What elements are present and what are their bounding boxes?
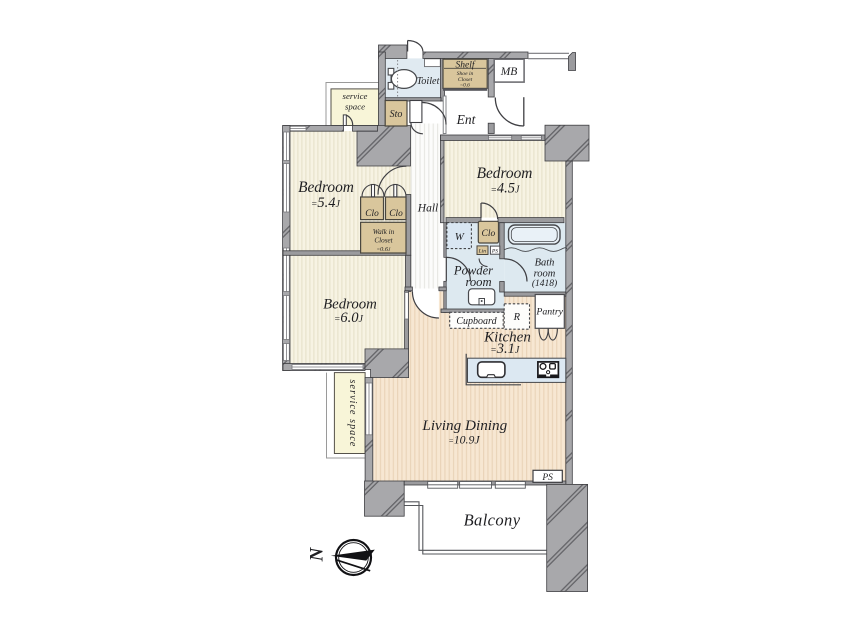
svg-text:(1418): (1418) bbox=[532, 278, 557, 289]
svg-text:service: service bbox=[343, 91, 368, 101]
svg-text:room: room bbox=[534, 268, 556, 279]
svg-text:PS: PS bbox=[541, 473, 553, 483]
svg-text:Bedroom: Bedroom bbox=[298, 179, 354, 196]
svg-text:Closet: Closet bbox=[374, 237, 393, 245]
svg-text:~0.6: ~0.6 bbox=[460, 82, 470, 88]
svg-text:Bedroom: Bedroom bbox=[477, 165, 533, 182]
svg-text:Shelf: Shelf bbox=[456, 59, 476, 70]
svg-text:room: room bbox=[465, 275, 491, 289]
svg-text:PS: PS bbox=[491, 248, 498, 254]
svg-text:Clo: Clo bbox=[365, 209, 379, 219]
svg-text:Ent: Ent bbox=[456, 112, 477, 127]
svg-text:Pantry: Pantry bbox=[535, 307, 563, 318]
svg-text:service space: service space bbox=[347, 380, 358, 448]
svg-text:space: space bbox=[345, 102, 365, 112]
svg-text:Cupboard: Cupboard bbox=[456, 316, 497, 327]
svg-text:Clo: Clo bbox=[389, 209, 403, 219]
svg-text:=0.6J: =0.6J bbox=[377, 246, 392, 253]
svg-text:Walk in: Walk in bbox=[373, 228, 395, 236]
svg-text:Bath: Bath bbox=[535, 258, 555, 269]
svg-text:Balcony: Balcony bbox=[464, 511, 521, 530]
svg-text:Clo: Clo bbox=[482, 229, 496, 239]
svg-text:Toilet: Toilet bbox=[417, 76, 441, 87]
svg-text:MB: MB bbox=[500, 66, 518, 78]
svg-text:Hall: Hall bbox=[417, 203, 438, 215]
svg-text:Living Dining: Living Dining bbox=[421, 417, 507, 434]
svg-text:Sto: Sto bbox=[390, 109, 403, 120]
svg-text:W: W bbox=[455, 231, 465, 243]
svg-text:=10.9J: =10.9J bbox=[448, 433, 480, 447]
svg-text:R: R bbox=[513, 312, 521, 323]
svg-text:N: N bbox=[307, 546, 328, 562]
svg-text:Lin: Lin bbox=[478, 249, 487, 255]
